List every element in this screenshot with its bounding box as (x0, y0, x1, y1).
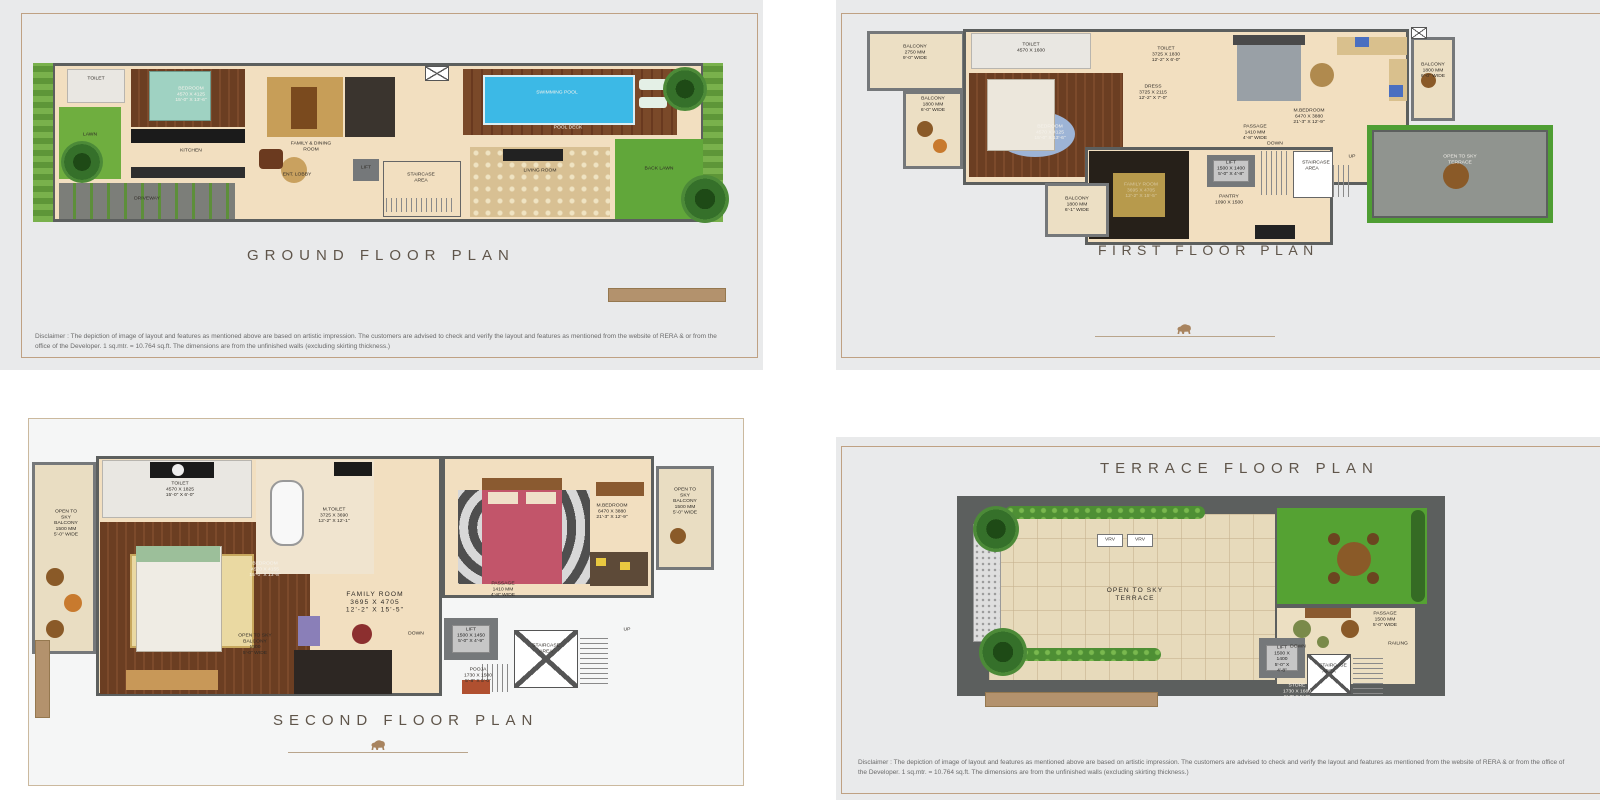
room-label: POOL DECK (546, 124, 590, 130)
room-label: TOILET 4570 X 1825 15'-0" X 6'-0" (155, 480, 205, 498)
desk (596, 482, 644, 496)
title-rule (1095, 336, 1275, 337)
room-label: DOWN (1289, 643, 1308, 649)
round-rug (281, 157, 307, 183)
cushion (1355, 37, 1369, 47)
terrace-floor-plan: VRV VRV OPEN TO SKY TERRACE PASSAGE 1500… (945, 490, 1450, 708)
room-label: FAMILY ROOM 3695 X 4705 12'-2" X 15'-5" (1118, 181, 1164, 199)
room-label: STAIRCASE AREA (1319, 662, 1339, 674)
first-floor-plan: BALCONY 2750 MM 9'-0" WIDE BALCONY 1800 … (855, 25, 1555, 220)
room-label: TOILET (77, 75, 116, 81)
staircase-area (383, 161, 461, 217)
room-label: LIFT (350, 164, 383, 170)
room-label: OPEN TO SKY TERRACE (1102, 586, 1168, 602)
vanity-counter (334, 462, 372, 476)
room-label: PANTRY 1090 X 1500 (1211, 193, 1246, 205)
basin (172, 464, 184, 476)
room-label: PASSAGE 1410 MM 4'-8" WIDE (1236, 123, 1275, 141)
room-label: M.BEDROOM 6470 X 3880 21'-3" X 12'-9" (1284, 107, 1335, 125)
accent-bar-vertical (35, 640, 50, 718)
ground-floor-title: GROUND FLOOR PLAN (247, 247, 515, 264)
balcony (32, 462, 96, 654)
round-table (1310, 63, 1334, 87)
palm-tree (61, 141, 103, 183)
room-label: FAMILY ROOM 3695 X 4705 12'-2" X 15'-5" (345, 590, 406, 613)
room-label: OPEN TO SKY BALCONY 1500 MM 5'-0" WIDE (51, 508, 82, 537)
seat (1317, 636, 1329, 648)
room-label: BEDROOM 4570 X 4125 15'-0" X 13'-6" (1025, 123, 1075, 141)
stair-treads (386, 198, 456, 212)
terrace-table (1443, 163, 1469, 189)
room-label: STAIRCASE AREA (401, 171, 441, 183)
room-label: TOILET 4570 X 1600 (1006, 41, 1056, 53)
room-label: BALCONY 2750 MM 9'-0" WIDE (893, 43, 937, 61)
room-label: ENT. LOBBY (275, 171, 319, 177)
stair-treads (1333, 165, 1353, 197)
sun-lounger (639, 97, 667, 108)
room-label: STAIRCASE AREA (532, 642, 560, 654)
room-label: SWIMMING POOL (522, 89, 592, 95)
lawn-chair (1367, 533, 1379, 545)
room-label: STORE 1730 X 1680 5'-8" X 5'-6" (1279, 682, 1314, 700)
kitchen-counter (131, 129, 245, 143)
planter (1009, 648, 1161, 661)
window-x-mark (1411, 27, 1427, 39)
lawn-table (1337, 542, 1371, 576)
room-label: PASSAGE 1500 MM 5'-0" WIDE (1367, 610, 1402, 628)
desk (126, 670, 218, 690)
balcony-chair (46, 620, 64, 638)
coffee-table (352, 624, 372, 644)
lawn-chair (1367, 572, 1379, 584)
room-label: OPEN TO SKY TERRACE (1427, 153, 1493, 165)
vrv-unit: VRV (1097, 534, 1123, 547)
first-floor-title: FIRST FLOOR PLAN (1098, 242, 1319, 258)
room-label: BALCONY 1800 MM 6'-1" WIDE (1062, 195, 1093, 213)
room-label: LIVING ROOM (515, 167, 565, 173)
lion-crest-icon (1176, 322, 1192, 340)
palm-tree (979, 628, 1027, 676)
headboard (1233, 35, 1305, 45)
swimming-pool (483, 75, 635, 125)
room-label: DRIVEWAY (125, 195, 169, 201)
room-label: DOWN (1264, 140, 1286, 146)
balcony (656, 466, 714, 570)
stair-treads (580, 634, 608, 684)
room-label: LIFT 1500 X 1400 5'-0" X 4'-8" (1216, 159, 1247, 177)
headboard (482, 478, 562, 490)
room-label: TOILET 3725 X 1830 12'-2" X 6'-0" (1146, 45, 1186, 63)
seat (1341, 620, 1359, 638)
room-label: POOJA 1730 X 1500 5'-8" X 5'-0" (462, 666, 495, 684)
second-floor-title: SECOND FLOOR PLAN (273, 712, 538, 729)
disclaimer-text: Disclaimer : The depiction of image of l… (858, 758, 1570, 779)
driveway-pavers (59, 183, 235, 219)
disclaimer-text: Disclaimer : The depiction of image of l… (35, 332, 727, 353)
floor-plan-sheet: { "colors": { "accent_tan": "#b3926d", "… (0, 0, 1600, 800)
room-label: BEDROOM 4570 X 4155 15'-0" X 13'-8" (240, 560, 290, 578)
hedge-strip (33, 63, 53, 222)
room-label: BEDROOM 4570 X 4125 15'-0" X 13'-6" (166, 85, 216, 103)
room-label: BALCONY 1800 MM 6'-0" WIDE (1419, 61, 1448, 79)
planter (1411, 510, 1425, 602)
palm-tree (663, 67, 707, 111)
room-label: UP (619, 626, 636, 632)
room-label: PASSAGE 1410 MM 4'-8" WIDE (484, 580, 523, 598)
planter (1005, 506, 1205, 519)
vrv-label: VRV (1121, 536, 1160, 542)
kitchen-counter (131, 167, 245, 178)
staircase-x (514, 630, 578, 688)
sofa (298, 616, 320, 646)
room-label: LIFT 1500 X 1450 5'-0" X 4'-9" (456, 626, 486, 644)
stair-treads (1261, 151, 1291, 195)
bench (1305, 608, 1351, 618)
room-label: KITCHEN (169, 147, 213, 153)
cushion (596, 558, 606, 566)
room-label: OPEN TO SKY BALCONY 1500 5'-0" WIDE (238, 632, 272, 655)
bed (1237, 45, 1301, 101)
balcony-table (64, 594, 82, 612)
terrace-floor-title: TERRACE FLOOR PLAN (1100, 460, 1379, 477)
title-rule (288, 752, 468, 753)
bathtub (270, 480, 304, 546)
window-x-mark (425, 66, 449, 81)
pillows (526, 492, 556, 504)
lawn-chair (1328, 533, 1340, 545)
pantry-counter (1255, 225, 1295, 239)
room-label: M.TOILET 3725 X 3690 12'-2" X 12'-1" (312, 506, 356, 524)
room-label: M.BEDROOM 6470 X 3880 21'-3" X 12'-9" (587, 502, 638, 520)
room-label: DRESS 3725 X 2115 12'-2" X 7'-0" (1133, 83, 1173, 101)
balcony (867, 31, 965, 91)
lift-shaft (353, 159, 379, 181)
room-label: DOWN (405, 630, 427, 636)
lion-crest-icon (370, 738, 386, 756)
balcony-table (933, 139, 947, 153)
room-label: UP (1344, 153, 1361, 159)
sofa (1337, 37, 1407, 55)
palm-tree (973, 506, 1019, 552)
lawn-chair (1328, 572, 1340, 584)
cushion (620, 562, 630, 570)
room-label: STAIRCASE AREA (1302, 159, 1322, 171)
room-label: BALCONY 1800 MM 6'-0" WIDE (918, 95, 949, 113)
ground-floor-plan: TOILET LAWN DRIVEWAY BEDROOM 4570 X 4125… (33, 63, 723, 222)
sofa-dark (345, 77, 395, 137)
balcony-chair (670, 528, 686, 544)
dining-table (291, 87, 317, 129)
room-label: FAMILY & DINING ROOM (284, 140, 339, 152)
room-label: RAILING (1384, 640, 1412, 646)
tv-console (503, 149, 563, 161)
accent-bar (608, 288, 726, 302)
seat (1293, 620, 1311, 638)
armchair (259, 149, 283, 169)
accent-bar (985, 692, 1158, 707)
cushion (1389, 85, 1403, 97)
pillows (136, 546, 220, 562)
room-label: BACK LAWN (637, 165, 681, 171)
family-accent-wall (294, 650, 392, 694)
second-floor-plan: OPEN TO SKY BALCONY 1500 MM 5'-0" WIDE T… (30, 448, 745, 700)
bed (482, 490, 562, 584)
pillows (488, 492, 518, 504)
balcony-chair (917, 121, 933, 137)
room-label: OPEN TO SKY BALCONY 1500 MM 5'-0" WIDE (670, 486, 700, 515)
balcony-chair (46, 568, 64, 586)
vrv-unit: VRV (1127, 534, 1153, 547)
room-label: LAWN (71, 131, 110, 137)
palm-tree (681, 175, 729, 223)
stair-treads (1353, 654, 1383, 694)
